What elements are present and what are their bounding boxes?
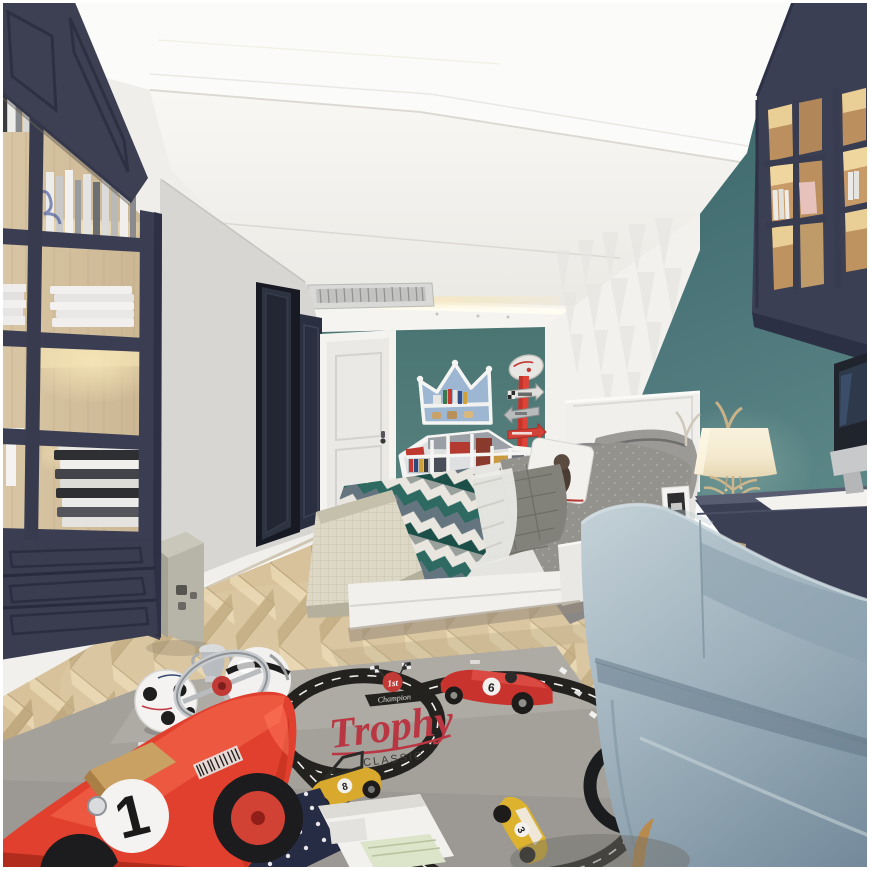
- svg-text:1st: 1st: [387, 677, 399, 688]
